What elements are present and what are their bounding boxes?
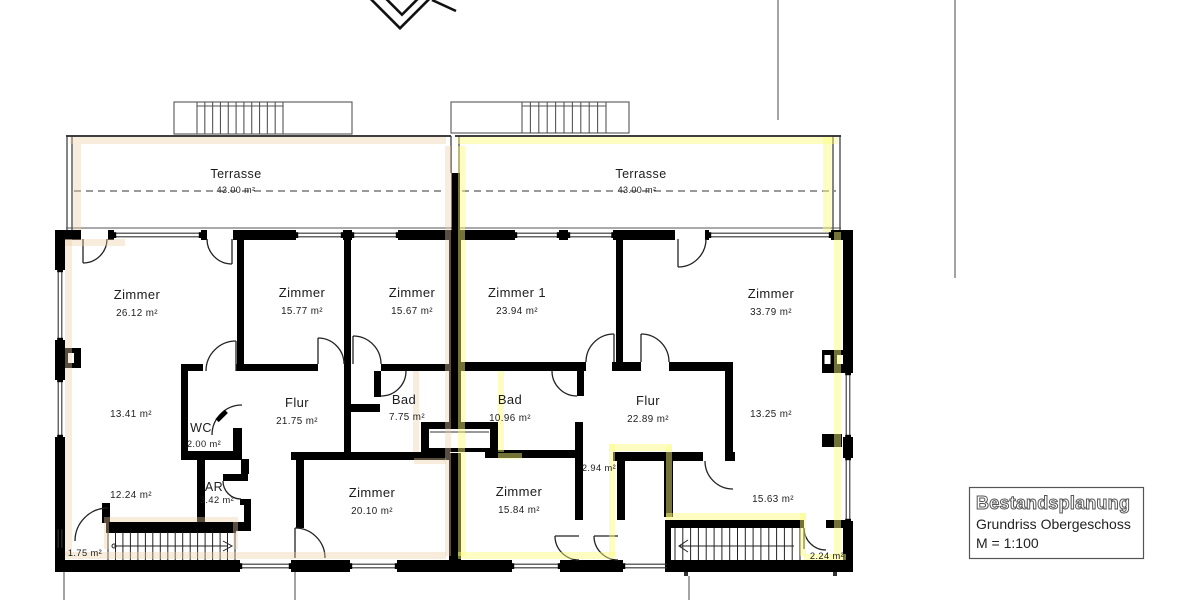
svg-text:15.84 m²: 15.84 m² [498, 505, 540, 516]
svg-text:M = 1:100: M = 1:100 [976, 535, 1039, 551]
svg-text:33.79 m²: 33.79 m² [750, 307, 792, 318]
svg-text:Zimmer 1: Zimmer 1 [488, 285, 546, 300]
svg-text:Grundriss Obergeschoss: Grundriss Obergeschoss [976, 516, 1131, 532]
svg-text:Flur: Flur [636, 393, 660, 408]
svg-text:10.96 m²: 10.96 m² [489, 413, 531, 424]
svg-text:Zimmer: Zimmer [496, 484, 543, 499]
svg-text:2.24 m²: 2.24 m² [810, 551, 844, 561]
svg-text:43.00 m²: 43.00 m² [217, 185, 256, 195]
svg-text:1.75 m²: 1.75 m² [68, 548, 102, 558]
svg-text:22.89 m²: 22.89 m² [627, 414, 669, 425]
svg-text:Zimmer: Zimmer [279, 285, 326, 300]
svg-text:AR: AR [205, 480, 223, 494]
svg-text:20.10 m²: 20.10 m² [351, 506, 393, 517]
svg-text:21.75 m²: 21.75 m² [276, 416, 318, 427]
svg-text:Terrasse: Terrasse [210, 167, 261, 181]
svg-text:Bestandsplanung: Bestandsplanung [976, 493, 1130, 513]
svg-text:Zimmer: Zimmer [748, 286, 795, 301]
svg-text:7.75 m²: 7.75 m² [389, 412, 425, 423]
svg-text:Bad: Bad [498, 392, 522, 407]
svg-text:12.24 m²: 12.24 m² [110, 490, 152, 501]
svg-text:Zimmer: Zimmer [389, 285, 436, 300]
svg-text:13.25 m²: 13.25 m² [750, 409, 792, 420]
svg-text:Zimmer: Zimmer [114, 287, 161, 302]
svg-text:26.12 m²: 26.12 m² [116, 308, 158, 319]
svg-text:43.00 m²: 43.00 m² [618, 185, 657, 195]
svg-text:15.77 m²: 15.77 m² [281, 306, 323, 317]
svg-text:15.67 m²: 15.67 m² [391, 306, 433, 317]
svg-text:2.00 m²: 2.00 m² [187, 439, 221, 449]
svg-text:3.42 m²: 3.42 m² [200, 495, 234, 505]
svg-text:15.63 m²: 15.63 m² [752, 494, 794, 505]
svg-text:Flur: Flur [285, 395, 309, 410]
svg-text:2.94 m²: 2.94 m² [582, 463, 616, 473]
svg-text:Bad: Bad [392, 392, 416, 407]
svg-text:Terrasse: Terrasse [615, 167, 666, 181]
svg-text:23.94 m²: 23.94 m² [496, 306, 538, 317]
svg-text:Zimmer: Zimmer [349, 485, 396, 500]
svg-text:13.41 m²: 13.41 m² [110, 409, 152, 420]
svg-text:WC: WC [190, 421, 212, 435]
